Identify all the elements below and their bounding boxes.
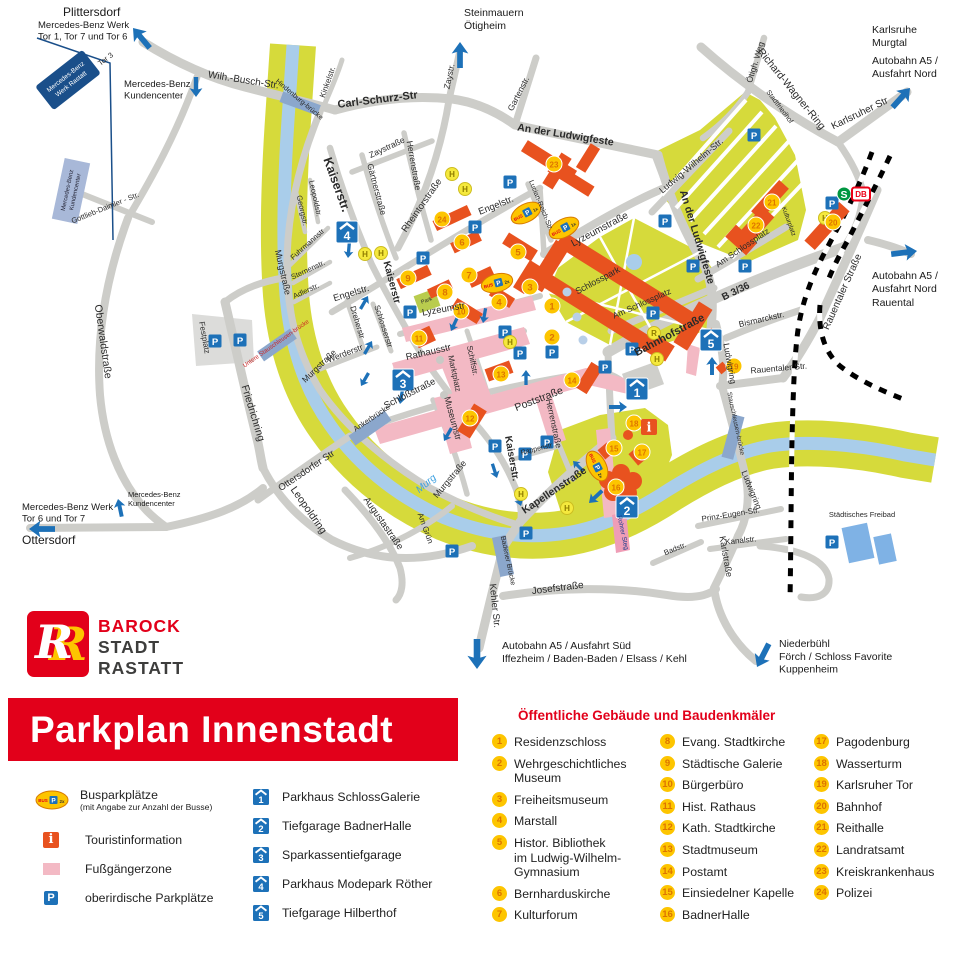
logo-line-stadt: STADT <box>98 637 184 658</box>
garage-icon: 4 <box>252 875 270 893</box>
direction-label: Rauental <box>872 297 914 309</box>
svg-text:P: P <box>492 442 499 453</box>
legend-tourist-label: Touristinformation <box>85 833 182 847</box>
street-label: Leopoldstr. <box>307 180 323 218</box>
legend-parkplaetze: P oberirdische Parkplätze <box>44 891 214 905</box>
garage-icon: 1 <box>252 788 270 806</box>
svg-text:5: 5 <box>258 911 263 921</box>
buildings-column-2: 8Evang. Stadtkirche9Städtische Galerie10… <box>660 734 818 928</box>
transit-stop-icon: H <box>651 353 664 366</box>
barock-stadt-rastatt-logo: R R BAROCK STADT RASTATT <box>27 611 287 681</box>
building-number-badge: 18 <box>814 756 829 771</box>
building-label: Kath. Stadtkirche <box>682 820 776 836</box>
street-label: Rauentaler Str. <box>750 361 807 376</box>
parking-icon: P <box>659 215 672 228</box>
wasserturm-building <box>623 430 633 440</box>
parking-icon: P <box>520 527 533 540</box>
svg-text:8: 8 <box>442 287 447 298</box>
building-list-item-19: 19Karlsruher Tor <box>814 777 964 793</box>
building-number-badge: 4 <box>492 813 507 828</box>
landmark-marker-7: 7 <box>461 267 477 283</box>
direction-arrow <box>112 498 127 518</box>
building-number-badge: 10 <box>660 777 675 792</box>
building-list-item-16: 16BadnerHalle <box>660 907 818 923</box>
svg-text:P: P <box>407 308 414 319</box>
svg-text:14: 14 <box>568 376 577 385</box>
parking-icon: P <box>234 334 247 347</box>
building-label: Einsiedelner Kapelle <box>682 885 794 901</box>
building-number-badge: 17 <box>814 734 829 749</box>
building-number-badge: 6 <box>492 886 507 901</box>
garage-legend-label: Parkhaus SchlossGalerie <box>282 790 420 804</box>
parking-icon: P <box>417 252 430 265</box>
garage-icon: 5 <box>253 905 270 922</box>
parking-icon: P <box>748 129 761 142</box>
parking-icon: P <box>687 260 700 273</box>
direction-arrow <box>343 243 354 259</box>
building-list-item-3: 3Freiheitsmuseum <box>492 792 654 808</box>
building-label: Bürgerbüro <box>682 777 744 793</box>
svg-text:9: 9 <box>405 273 410 284</box>
building <box>576 143 600 173</box>
landmark-marker-8: 8 <box>437 284 453 300</box>
building-label: Bernharduskirche <box>514 886 610 902</box>
svg-text:5: 5 <box>515 247 521 258</box>
building-label: Histor. Bibliothek im Ludwig-Wilhelm- Gy… <box>514 835 621 880</box>
parking-icon: P <box>826 536 839 549</box>
parking-icon: P <box>514 347 527 360</box>
buildings-column-3: 17Pagodenburg18Wasserturm19Karlsruher To… <box>814 734 964 907</box>
street-label: Dreherstr <box>348 305 366 340</box>
svg-text:P: P <box>523 529 530 540</box>
parking-icon: P <box>446 545 459 558</box>
building-number-badge: 14 <box>660 864 675 879</box>
building-number-badge: 20 <box>814 799 829 814</box>
garage-icon: 2 <box>253 818 270 835</box>
landmark-marker-6: 6 <box>454 234 470 250</box>
svg-text:4: 4 <box>258 882 264 892</box>
street-label: Kaiserstr. <box>502 435 521 482</box>
landmark-marker-4: 4 <box>491 294 507 310</box>
building-label: Kulturforum <box>514 907 578 923</box>
svg-text:2x: 2x <box>59 799 65 804</box>
pedestrian-zone-swatch <box>43 863 60 875</box>
landmark-marker-18: 18 <box>626 415 642 431</box>
building-list-item-13: 13Stadtmuseum <box>660 842 818 858</box>
svg-text:P: P <box>517 349 524 360</box>
svg-text:DB: DB <box>855 190 867 199</box>
building-list-item-17: 17Pagodenburg <box>814 734 964 750</box>
building-number-badge: 22 <box>814 842 829 857</box>
svg-text:4: 4 <box>496 297 502 308</box>
building-number-badge: 7 <box>492 907 507 922</box>
parkplan-page: Mercedes-Benz Werk Rastatt Mercedes-Benz… <box>0 0 966 966</box>
garage-legend-item-2: 2Tiefgarage BadnerHalle <box>252 818 432 834</box>
building-list-item-2: 2Wehrgeschichtliches Museum <box>492 756 654 786</box>
transit-stop-icon: H <box>359 248 372 261</box>
landmark-marker-23: 23 <box>546 156 562 172</box>
parking-icon: P <box>504 176 517 189</box>
garage-icon: 2 <box>252 817 270 835</box>
street-label: Kaiserstr. <box>320 155 353 213</box>
svg-text:P: P <box>662 217 669 228</box>
logo-line-barock: BAROCK <box>98 616 184 637</box>
svg-text:7: 7 <box>466 270 471 281</box>
buildings-title: Öffentliche Gebäude und Baudenkmäler <box>518 708 775 723</box>
landmark-marker-16: 16 <box>608 479 624 495</box>
parking-icon: P <box>404 306 417 319</box>
garage-icon: 3 <box>253 847 270 864</box>
svg-text:P: P <box>472 223 479 234</box>
building-list-item-5: 5Histor. Bibliothek im Ludwig-Wilhelm- G… <box>492 835 654 880</box>
landmark-marker-12: 12 <box>462 410 478 426</box>
garage-legend-item-1: 1Parkhaus SchlossGalerie <box>252 789 432 805</box>
building-number-badge: 19 <box>814 777 829 792</box>
svg-text:11: 11 <box>415 334 424 343</box>
building-label: Polizei <box>836 885 872 901</box>
freibad-building <box>873 533 896 564</box>
svg-text:3: 3 <box>527 282 532 293</box>
svg-text:H: H <box>462 185 468 194</box>
svg-text:P: P <box>650 309 657 320</box>
direction-arrow <box>488 462 502 479</box>
direction-arrow <box>357 371 373 389</box>
svg-text:15: 15 <box>610 444 619 453</box>
street-label: Ottersdorfer Str <box>276 448 336 494</box>
building-label: Bahnhof <box>836 799 882 815</box>
landmark-marker-13: 13 <box>493 366 509 382</box>
svg-text:P: P <box>449 547 456 558</box>
parking-icon: P <box>826 197 839 210</box>
parking-icon: P <box>489 440 502 453</box>
garage-legend-item-5: 5Tiefgarage Hilberthof <box>252 905 432 921</box>
building-label: Kreiskrankenhaus <box>836 864 934 880</box>
building-list-item-4: 4Marstall <box>492 813 654 829</box>
svg-text:P: P <box>420 254 427 265</box>
building-label: Marstall <box>514 813 557 829</box>
landmark-marker-14: 14 <box>564 372 580 388</box>
building-list-item-10: 10Bürgerbüro <box>660 777 818 793</box>
landmark-marker-9: 9 <box>400 270 416 286</box>
svg-text:H: H <box>518 490 524 499</box>
landmark-marker-21: 21 <box>764 194 780 210</box>
garage-icon: 1 <box>626 378 648 400</box>
parking-icon: P <box>739 260 752 273</box>
landmark-marker-5: 5 <box>510 244 526 260</box>
garage-legend-item-4: 4Parkhaus Modepark Röther <box>252 876 432 892</box>
direction-label: Autobahn A5 /Ausfahrt Nord <box>872 270 938 295</box>
svg-text:18: 18 <box>630 419 639 428</box>
garage-legend-label: Tiefgarage Hilberthof <box>282 906 396 920</box>
building-number-badge: 15 <box>660 885 675 900</box>
garage-legend-label: Sparkassentiefgarage <box>282 848 402 862</box>
garage-icon: 5 <box>700 329 722 351</box>
transit-stop-icon: H <box>515 488 528 501</box>
svg-text:i: i <box>647 421 652 436</box>
street-label: Josefstraße <box>531 580 585 597</box>
building-number-badge: 1 <box>492 734 507 749</box>
street-label: Gärtnerstraße <box>365 162 388 216</box>
svg-text:P: P <box>237 336 244 347</box>
garage-icon: 4 <box>253 876 270 893</box>
direction-label: NiederbühlFörch / Schloss FavoriteKuppen… <box>779 638 892 676</box>
building-label: Karlsruher Tor <box>836 777 913 793</box>
street-label: Tor 3 <box>96 50 115 67</box>
building-number-badge: 11 <box>660 799 675 814</box>
svg-text:P: P <box>602 363 609 374</box>
garage-legend-label: Tiefgarage BadnerHalle <box>282 819 411 833</box>
svg-text:16: 16 <box>612 483 621 492</box>
buildings-column-1: 1Residenzschloss2Wehrgeschichtliches Mus… <box>492 734 654 929</box>
building-number-badge: 9 <box>660 756 675 771</box>
building-list-item-7: 7Kulturforum <box>492 907 654 923</box>
logo-r-white: R <box>35 615 73 669</box>
transit-stop-icon: H <box>446 168 459 181</box>
direction-label: Mercedes-Benz WerkTor 1, Tor 7 und Tor 6 <box>38 20 129 43</box>
garage-icon: 3 <box>252 846 270 864</box>
building-list-item-14: 14Postamt <box>660 864 818 880</box>
svg-text:H: H <box>507 338 513 347</box>
tourist-info-icon: i <box>641 419 657 436</box>
building-label: Hist. Rathaus <box>682 799 756 815</box>
parking-icon: P <box>599 361 612 374</box>
building-list-item-6: 6Bernharduskirche <box>492 886 654 902</box>
direction-label: Mercedes-Benz WerkTor 6 und Tor 7 <box>22 502 113 525</box>
building-number-badge: 13 <box>660 842 675 857</box>
building-label: Residenzschloss <box>514 734 606 750</box>
direction-label: KarlsruheMurgtal <box>872 24 917 49</box>
building-number-badge: 2 <box>492 756 507 771</box>
building-label: Städtische Galerie <box>682 756 782 772</box>
building-list-item-15: 15Einsiedelner Kapelle <box>660 885 818 901</box>
landmark-marker-2: 2 <box>544 329 560 345</box>
svg-text:P: P <box>212 337 219 348</box>
parking-icon: P <box>469 221 482 234</box>
title-banner: Parkplan Innenstadt <box>8 698 458 761</box>
svg-text:P: P <box>507 178 514 189</box>
s-bahn-icon: S <box>837 187 851 201</box>
svg-text:1: 1 <box>549 301 555 312</box>
legend-busparkplaetze: BUSP2x Busparkplätze (mit Angabe zur Anz… <box>30 788 212 812</box>
building-list-item-22: 22Landratsamt <box>814 842 964 858</box>
building-label: Landratsamt <box>836 842 904 858</box>
legend-bus-label: Busparkplätze <box>80 788 212 802</box>
schlosspark-pond <box>626 254 642 270</box>
building-label: Stadtmuseum <box>682 842 758 858</box>
garage-legend-label: Parkhaus Modepark Röther <box>282 877 432 891</box>
building-number-badge: 8 <box>660 734 675 749</box>
building-list-item-8: 8Evang. Stadtkirche <box>660 734 818 750</box>
building-label: Wasserturm <box>836 756 902 772</box>
parking-icon: P <box>546 346 559 359</box>
landmark-marker-24: 24 <box>434 211 450 227</box>
svg-text:H: H <box>449 170 455 179</box>
direction-label: Mercedes-BenzKundencenter <box>124 79 191 102</box>
direction-label: Autobahn A5 / Ausfahrt SüdIffezheim / Ba… <box>502 640 687 665</box>
svg-text:P: P <box>829 538 836 549</box>
tourist-info-icon: i <box>43 832 59 848</box>
transit-stop-icon: H <box>504 336 517 349</box>
db-logo-icon: DB <box>852 188 870 201</box>
building-list-item-18: 18Wasserturm <box>814 756 964 772</box>
landmark-marker-11: 11 <box>411 330 427 346</box>
svg-text:2: 2 <box>258 824 263 834</box>
svg-text:P: P <box>829 199 836 210</box>
building-label: Reithalle <box>836 820 884 836</box>
svg-text:1: 1 <box>258 795 263 805</box>
building-list-item-20: 20Bahnhof <box>814 799 964 815</box>
street-label: Ludwigring <box>739 469 764 511</box>
landmark-marker-1: 1 <box>544 298 560 314</box>
svg-text:P: P <box>742 262 749 273</box>
legend-fussgaengerzone: Fußgängerzone <box>43 862 172 876</box>
direction-label: Mercedes-BenzKundencenter <box>128 490 181 508</box>
svg-text:23: 23 <box>550 160 559 169</box>
landmark-marker-17: 17 <box>634 444 650 460</box>
svg-text:S: S <box>840 189 847 201</box>
direction-arrow <box>706 357 718 375</box>
building-number-badge: 24 <box>814 885 829 900</box>
transit-stop-icon: H <box>459 183 472 196</box>
bus-parking-icon: BUSP2x <box>30 788 74 812</box>
freibad-building <box>842 523 875 564</box>
building-label: Evang. Stadtkirche <box>682 734 785 750</box>
building-number-badge: 21 <box>814 820 829 835</box>
svg-text:H: H <box>654 355 660 364</box>
building-number-badge: 5 <box>492 835 507 850</box>
building-label: Pagodenburg <box>836 734 910 750</box>
parking-icon: P <box>44 891 58 905</box>
logo-text: BAROCK STADT RASTATT <box>98 616 184 679</box>
svg-text:2: 2 <box>624 504 631 518</box>
landmark-marker-20: 20 <box>825 214 841 230</box>
building-label: Wehrgeschichtliches Museum <box>514 756 627 786</box>
city-map: Mercedes-Benz Werk Rastatt Mercedes-Benz… <box>0 0 966 700</box>
building-list-item-23: 23Kreiskrankenhaus <box>814 864 964 880</box>
svg-text:17: 17 <box>638 448 647 457</box>
legend-parking-label: oberirdische Parkplätze <box>85 891 214 905</box>
building-number-badge: 12 <box>660 820 675 835</box>
building-list-item-11: 11Hist. Rathaus <box>660 799 818 815</box>
svg-text:P: P <box>549 348 556 359</box>
street-label: Städtisches Freibad <box>829 510 895 519</box>
svg-text:2: 2 <box>549 332 554 343</box>
svg-text:24: 24 <box>438 215 447 224</box>
building-list-item-1: 1Residenzschloss <box>492 734 654 750</box>
building-number-badge: 23 <box>814 864 829 879</box>
building-list-item-24: 24Polizei <box>814 885 964 901</box>
street-label: Carl-Schurz-Str <box>337 89 419 111</box>
parking-icon: P <box>647 307 660 320</box>
svg-text:6: 6 <box>459 237 464 248</box>
garage-icon: 1 <box>253 789 270 806</box>
svg-text:BUS: BUS <box>38 798 48 803</box>
legend-bus-sublabel: (mit Angabe zur Anzahl der Busse) <box>80 802 212 812</box>
garage-legend-item-3: 3Sparkassentiefgarage <box>252 847 432 863</box>
svg-text:12: 12 <box>466 414 475 423</box>
transit-stop-icon: H <box>375 247 388 260</box>
logo-line-rastatt: RASTATT <box>98 658 184 679</box>
building-list-item-21: 21Reithalle <box>814 820 964 836</box>
landmark-marker-3: 3 <box>522 279 538 295</box>
garage-icon: 4 <box>336 221 358 243</box>
svg-text:13: 13 <box>497 370 506 379</box>
svg-text:5: 5 <box>708 337 715 351</box>
building-number-badge: 16 <box>660 907 675 922</box>
building-list-item-12: 12Kath. Stadtkirche <box>660 820 818 836</box>
svg-text:3: 3 <box>258 853 263 863</box>
svg-text:21: 21 <box>768 198 777 207</box>
logo-mark: R R <box>27 611 89 677</box>
svg-text:P: P <box>690 262 697 273</box>
svg-text:P: P <box>751 131 758 142</box>
direction-label: Autobahn A5 /Ausfahrt Nord <box>872 55 938 80</box>
transit-stop-icon: H <box>561 502 574 515</box>
building-list-item-9: 9Städtische Galerie <box>660 756 818 772</box>
bus-parking-icon: BUSP2x <box>36 791 68 809</box>
garage-icon: 5 <box>252 904 270 922</box>
legend-touristinformation: i Touristinformation <box>43 832 182 848</box>
svg-text:H: H <box>362 250 368 259</box>
svg-text:4: 4 <box>344 229 351 243</box>
direction-label: SteinmauernÖtigheim <box>464 7 524 32</box>
building-number-badge: 3 <box>492 792 507 807</box>
garage-legend: 1Parkhaus SchlossGalerie2Tiefgarage Badn… <box>252 789 432 934</box>
legend-pedestrian-label: Fußgängerzone <box>85 862 172 876</box>
street-label: Schlosserstr <box>372 304 394 349</box>
svg-text:1: 1 <box>634 386 641 400</box>
building-label: Postamt <box>682 864 727 880</box>
direction-label: Ottersdorf <box>22 533 76 547</box>
page-title: Parkplan Innenstadt <box>30 709 393 751</box>
svg-text:20: 20 <box>829 218 838 227</box>
svg-text:P: P <box>51 798 56 805</box>
direction-label: Plittersdorf <box>63 5 121 19</box>
landmark-marker-15: 15 <box>606 440 622 456</box>
building-label: BadnerHalle <box>682 907 750 923</box>
svg-text:H: H <box>378 249 384 258</box>
building-label: Freiheitsmuseum <box>514 792 608 808</box>
svg-text:H: H <box>564 504 570 513</box>
